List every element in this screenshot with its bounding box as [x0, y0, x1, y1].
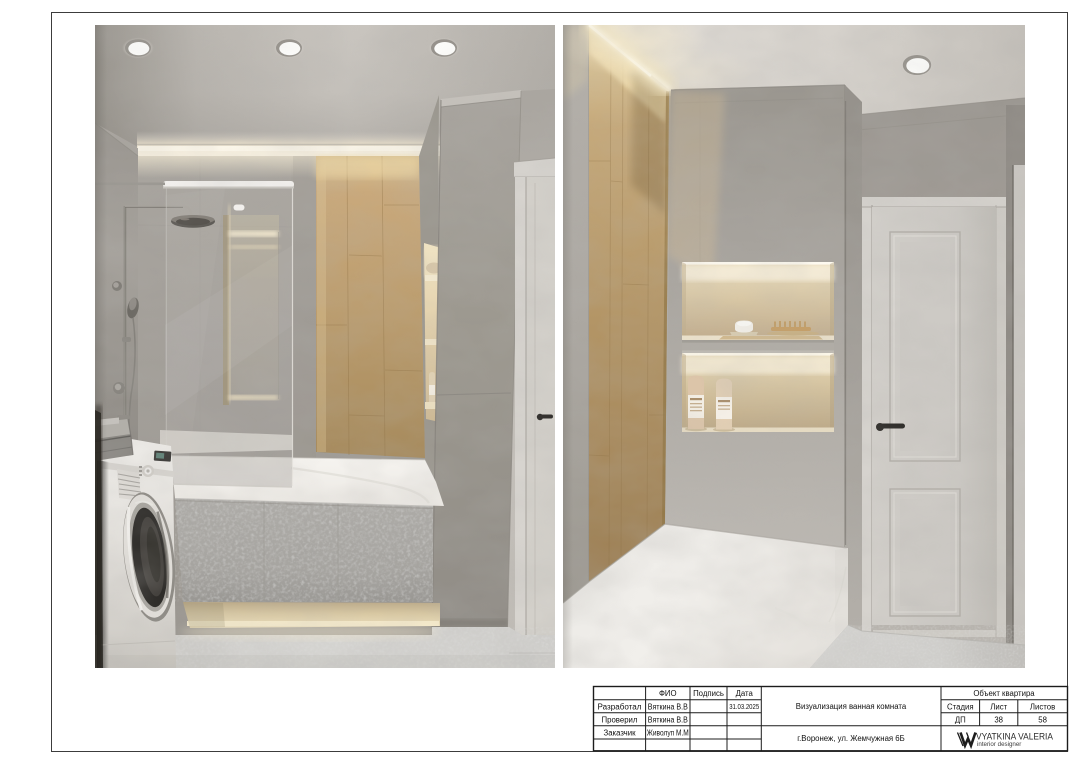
svg-text:г.Воронеж, ул. Жемчужная 6Б: г.Воронеж, ул. Жемчужная 6Б — [797, 734, 905, 743]
svg-text:Объект квартира: Объект квартира — [973, 689, 1035, 698]
svg-text:Стадия: Стадия — [947, 702, 974, 711]
svg-text:ДП: ДП — [955, 715, 966, 724]
svg-text:Вяткина В.В: Вяткина В.В — [648, 715, 688, 724]
svg-text:Лист: Лист — [990, 702, 1007, 711]
svg-text:38: 38 — [994, 715, 1003, 724]
svg-text:ФИО: ФИО — [659, 689, 677, 698]
svg-text:Листов: Листов — [1030, 702, 1055, 711]
svg-text:interior designer: interior designer — [977, 741, 1021, 748]
svg-text:Дата: Дата — [736, 689, 754, 698]
svg-text:31.03.2025: 31.03.2025 — [729, 704, 759, 711]
svg-text:Проверил: Проверил — [602, 715, 638, 724]
svg-text:Заказчик: Заказчик — [603, 729, 636, 738]
svg-text:Визуализация ванная комната: Визуализация ванная комната — [796, 702, 907, 711]
svg-text:58: 58 — [1038, 715, 1047, 724]
svg-text:Живолуп М.М: Живолуп М.М — [647, 729, 689, 738]
svg-text:Разработал: Разработал — [598, 702, 642, 711]
svg-text:Подпись: Подпись — [693, 689, 724, 698]
svg-text:Вяткина В.В: Вяткина В.В — [648, 702, 688, 711]
